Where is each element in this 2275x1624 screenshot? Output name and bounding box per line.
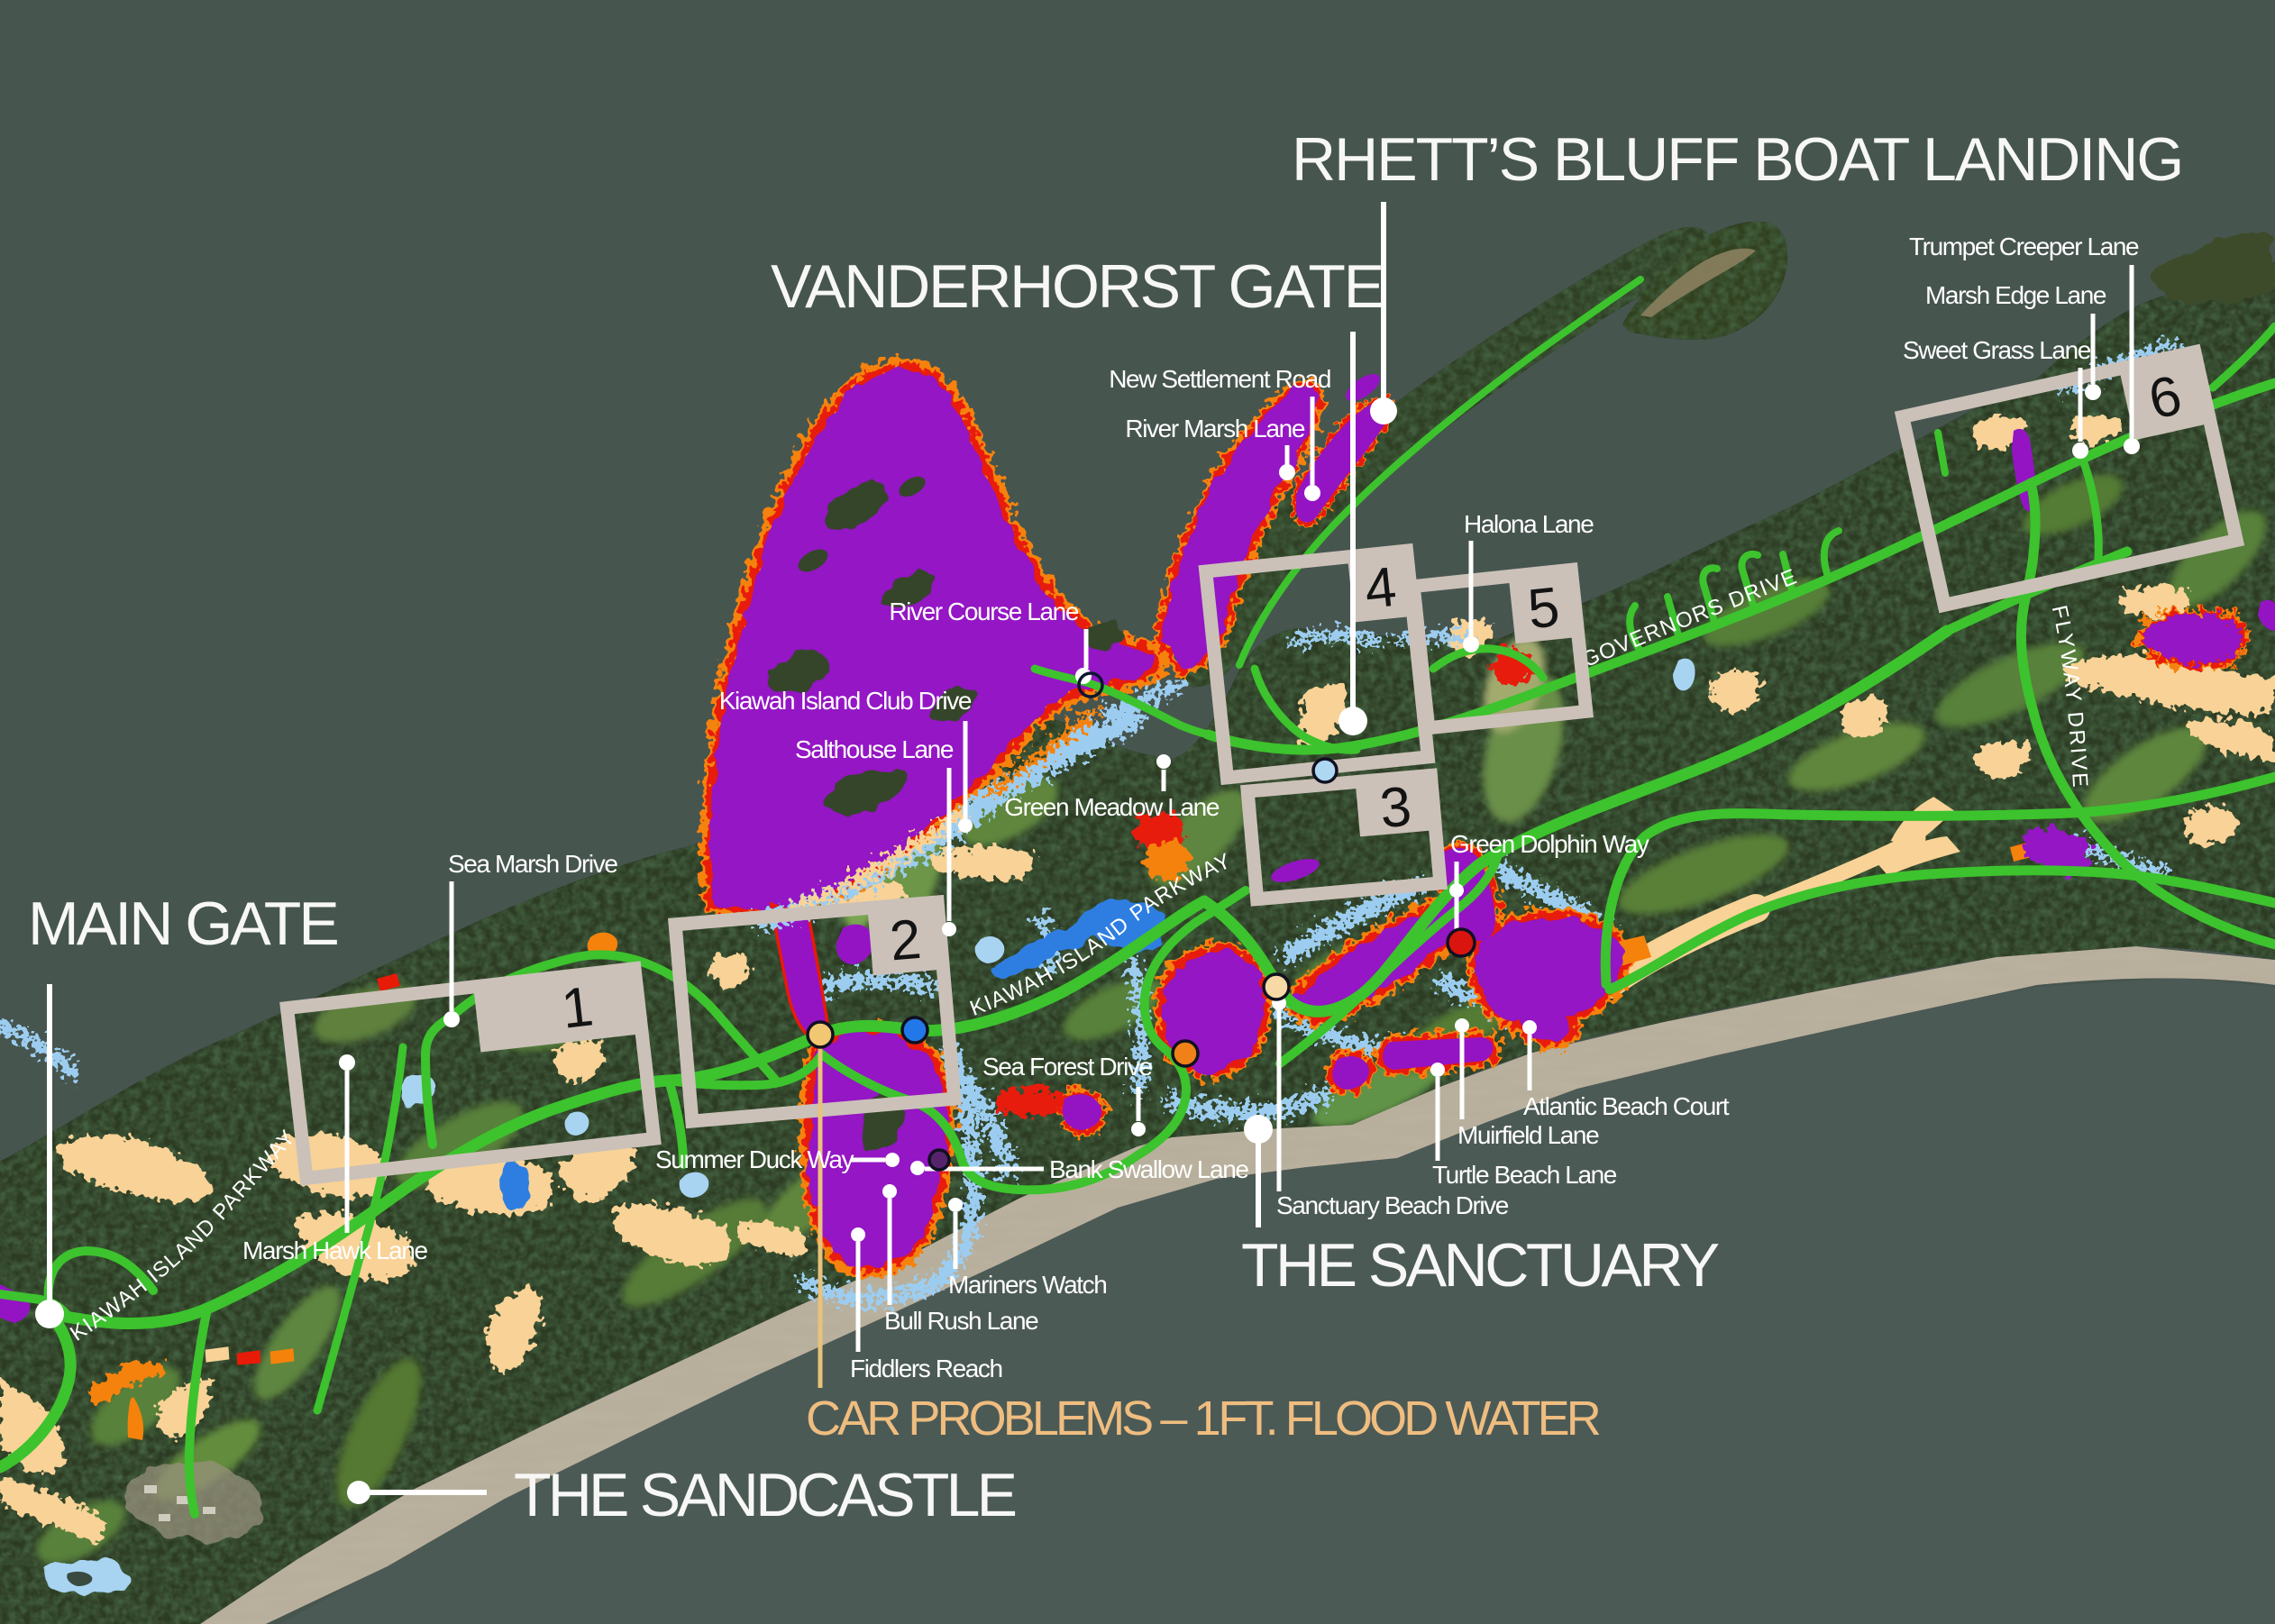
svg-text:3: 3: [1377, 776, 1413, 841]
svg-text:Salthouse Lane: Salthouse Lane: [795, 735, 954, 763]
svg-text:River Course Lane: River Course Lane: [889, 598, 1078, 625]
svg-text:Atlantic Beach Court: Atlantic Beach Court: [1523, 1092, 1730, 1120]
svg-text:River Marsh Lane: River Marsh Lane: [1125, 415, 1304, 442]
svg-text:Mariners Watch: Mariners Watch: [948, 1271, 1106, 1299]
svg-text:Bank Swallow Lane: Bank Swallow Lane: [1049, 1155, 1248, 1183]
svg-text:THE SANDCASTLE: THE SANDCASTLE: [514, 1461, 1016, 1529]
svg-text:2: 2: [887, 908, 923, 973]
svg-text:Summer Duck Way: Summer Duck Way: [655, 1145, 854, 1173]
svg-text:CAR PROBLEMS – 1 FT. FLOOD WAT: CAR PROBLEMS – 1 FT. FLOOD WATER: [806, 1391, 1600, 1446]
svg-text:5: 5: [1525, 576, 1563, 641]
svg-text:New Settlement Road: New Settlement Road: [1109, 365, 1330, 393]
svg-text:Sanctuary Beach Drive: Sanctuary Beach Drive: [1276, 1191, 1509, 1219]
svg-text:RHETT’S BLUFF BOAT LANDING: RHETT’S BLUFF BOAT LANDING: [1292, 125, 2182, 194]
svg-text:Sea Forest Drive: Sea Forest Drive: [982, 1053, 1152, 1081]
svg-text:Marsh Edge Lane: Marsh Edge Lane: [1925, 281, 2106, 309]
svg-text:Green Meadow Lane: Green Meadow Lane: [1004, 793, 1220, 821]
svg-text:Trumpet Creeper Lane: Trumpet Creeper Lane: [1909, 233, 2139, 260]
svg-text:Fiddlers Reach: Fiddlers Reach: [850, 1355, 1002, 1382]
svg-text:VANDERHORST GATE: VANDERHORST GATE: [771, 252, 1383, 321]
svg-text:Kiawah Island Club Drive: Kiawah Island Club Drive: [719, 687, 972, 715]
svg-text:MAIN GATE: MAIN GATE: [28, 890, 337, 958]
svg-text:THE SANCTUARY: THE SANCTUARY: [1241, 1231, 1719, 1300]
svg-text:Sweet Grass Lane: Sweet Grass Lane: [1903, 336, 2091, 364]
svg-text:Green Dolphin Way: Green Dolphin Way: [1450, 830, 1649, 858]
svg-text:Turtle Beach Lane: Turtle Beach Lane: [1432, 1161, 1617, 1189]
svg-text:Sea Marsh Drive: Sea Marsh Drive: [448, 850, 617, 878]
svg-text:Marsh Hawk Lane: Marsh Hawk Lane: [242, 1236, 427, 1264]
svg-text:4: 4: [1362, 556, 1399, 621]
svg-text:Muirfield Lane: Muirfield Lane: [1457, 1121, 1599, 1149]
svg-text:Halona Lane: Halona Lane: [1464, 510, 1594, 538]
svg-text:Bull Rush Lane: Bull Rush Lane: [884, 1307, 1038, 1335]
